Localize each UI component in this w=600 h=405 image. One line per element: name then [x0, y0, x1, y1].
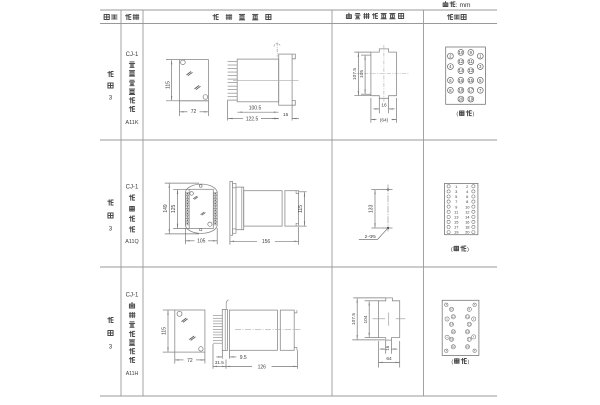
svg-text:A11Q: A11Q	[125, 239, 138, 245]
svg-text:122.5: 122.5	[246, 116, 259, 122]
svg-text:125: 125	[171, 205, 177, 214]
svg-text:16: 16	[452, 330, 456, 334]
svg-text:100.5: 100.5	[249, 106, 262, 112]
svg-text:CJ-1: CJ-1	[126, 185, 139, 191]
svg-text:): )	[473, 112, 475, 118]
svg-text:72: 72	[191, 109, 197, 115]
svg-text:17: 17	[469, 88, 474, 93]
svg-text:(64): (64)	[380, 117, 389, 123]
svg-text:19: 19	[466, 345, 470, 349]
svg-text:A11K: A11K	[125, 120, 139, 126]
svg-text:11: 11	[466, 315, 470, 319]
svg-text:149: 149	[163, 204, 169, 213]
svg-text:20: 20	[452, 345, 456, 349]
svg-text:3: 3	[109, 95, 113, 102]
svg-text:13: 13	[469, 68, 474, 73]
svg-text:16: 16	[385, 345, 390, 350]
svg-text:19: 19	[469, 97, 474, 102]
svg-text:(: (	[456, 112, 458, 118]
svg-text:): )	[467, 247, 469, 253]
svg-text:14: 14	[459, 68, 464, 73]
svg-text:A11H: A11H	[126, 371, 139, 377]
svg-text:115: 115	[165, 81, 171, 89]
svg-text:3: 3	[109, 344, 113, 351]
svg-text:115: 115	[298, 205, 304, 213]
svg-text:10: 10	[459, 50, 464, 55]
svg-text:19: 19	[454, 230, 459, 235]
svg-text:Φ5: Φ5	[369, 234, 376, 240]
svg-text:31.5: 31.5	[215, 360, 224, 365]
svg-text:): )	[468, 359, 470, 365]
svg-text:9.5: 9.5	[240, 355, 247, 361]
svg-text:15: 15	[469, 78, 474, 83]
svg-text:105: 105	[197, 239, 206, 245]
svg-text:156: 156	[262, 239, 271, 245]
svg-text:18: 18	[450, 338, 454, 342]
svg-text:12: 12	[452, 315, 456, 319]
svg-text:9: 9	[468, 308, 470, 312]
svg-text:115: 115	[162, 327, 168, 335]
svg-text:16: 16	[381, 103, 387, 109]
svg-text:CJ-1: CJ-1	[126, 52, 139, 58]
svg-text:133: 133	[369, 204, 375, 213]
svg-text:(: (	[451, 247, 453, 253]
svg-text:20: 20	[459, 97, 464, 102]
svg-text:10: 10	[450, 308, 454, 312]
svg-text:64: 64	[386, 356, 392, 362]
svg-text:104: 104	[363, 315, 369, 323]
svg-text:17: 17	[468, 338, 472, 342]
svg-text:3: 3	[109, 226, 113, 233]
svg-text:107.5: 107.5	[352, 68, 358, 80]
svg-text:72: 72	[187, 358, 193, 364]
svg-text:126: 126	[258, 364, 267, 370]
svg-text:107.5: 107.5	[351, 313, 357, 325]
svg-text:15: 15	[466, 330, 470, 334]
svg-text:(: (	[451, 359, 453, 365]
svg-text:15: 15	[283, 112, 289, 118]
svg-text:12: 12	[459, 59, 464, 64]
svg-text:105: 105	[359, 70, 365, 78]
svg-text:11: 11	[469, 59, 474, 64]
svg-text:mm: mm	[460, 2, 471, 9]
svg-text:13: 13	[468, 323, 472, 327]
svg-text:18: 18	[459, 88, 464, 93]
svg-text:20: 20	[465, 230, 470, 235]
svg-text:CJ-1: CJ-1	[126, 293, 139, 299]
svg-text:16: 16	[459, 78, 464, 83]
svg-text:14: 14	[450, 323, 454, 327]
